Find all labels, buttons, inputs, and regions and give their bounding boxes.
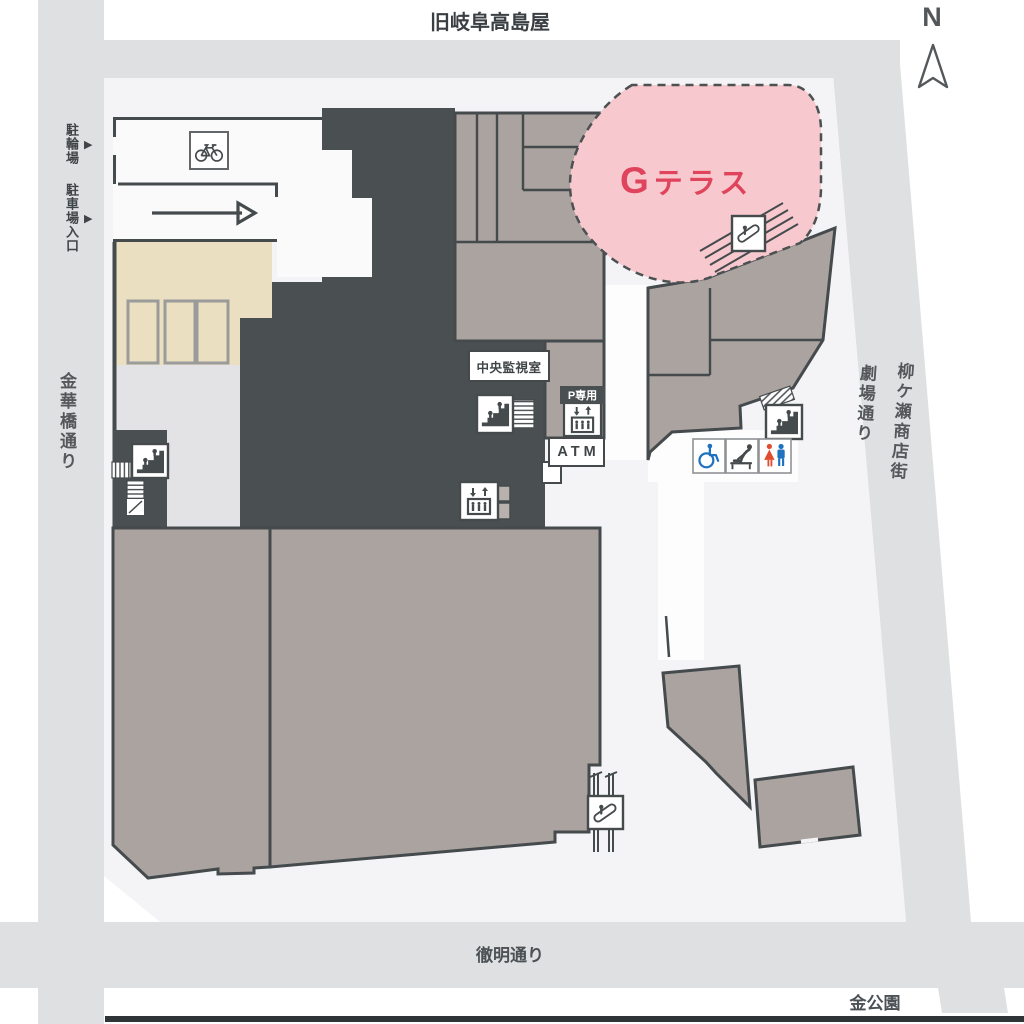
amenities-row: [693, 439, 791, 473]
central-staircase: [477, 395, 534, 433]
road-yanagase-south: [938, 988, 1008, 1013]
parcel-door-gap: [801, 840, 818, 842]
floor-map: 旧岐阜高島屋 N 金華橋通り 劇場通り 柳ケ瀬商店街 徹明通り 金公園 駐輪場 …: [0, 0, 1024, 1024]
parcel-rect: [755, 767, 860, 847]
central-elevator: [460, 482, 510, 520]
g-terrace-label: G テラス: [620, 160, 752, 202]
beige-bays: [128, 301, 228, 363]
atm-box: ATM: [548, 437, 605, 467]
building-south-west: [113, 528, 270, 878]
monitor-room-box: 中央監視室: [468, 350, 550, 382]
g-terrace-initial: G: [620, 160, 649, 202]
parking-entrance-text: 駐車場入口: [62, 183, 81, 253]
parking-entrance-label: 駐車場入口 ▶: [62, 178, 92, 258]
park-label: 金公園: [810, 989, 940, 1014]
compass-north-label: N: [912, 2, 952, 33]
g-terrace-text: テラス: [654, 160, 752, 202]
building-south-east: [270, 528, 600, 867]
north-arrow-icon: [919, 45, 947, 87]
road-top: [104, 40, 900, 78]
street-label-tetsumei: 徹明通り: [420, 941, 600, 966]
parking-elevator: [564, 403, 601, 436]
entrance-marker-icon: ▶: [84, 138, 92, 151]
map-canvas: [0, 0, 1024, 1024]
terrace-escalator: [732, 216, 765, 251]
bicycle-parking-label: 駐輪場 ▶: [62, 116, 92, 172]
parking-elevator-badge: P専用: [560, 386, 605, 404]
bicycle-parking-text: 駐輪場: [62, 123, 81, 165]
entrance-marker-icon: ▶: [84, 212, 92, 225]
map-south-edge: [105, 1016, 1024, 1022]
street-label-kinkabashi: 金華橋通り: [54, 372, 79, 472]
street-label-top: 旧岐阜高島屋: [360, 6, 620, 35]
west-staircase: [112, 430, 168, 528]
